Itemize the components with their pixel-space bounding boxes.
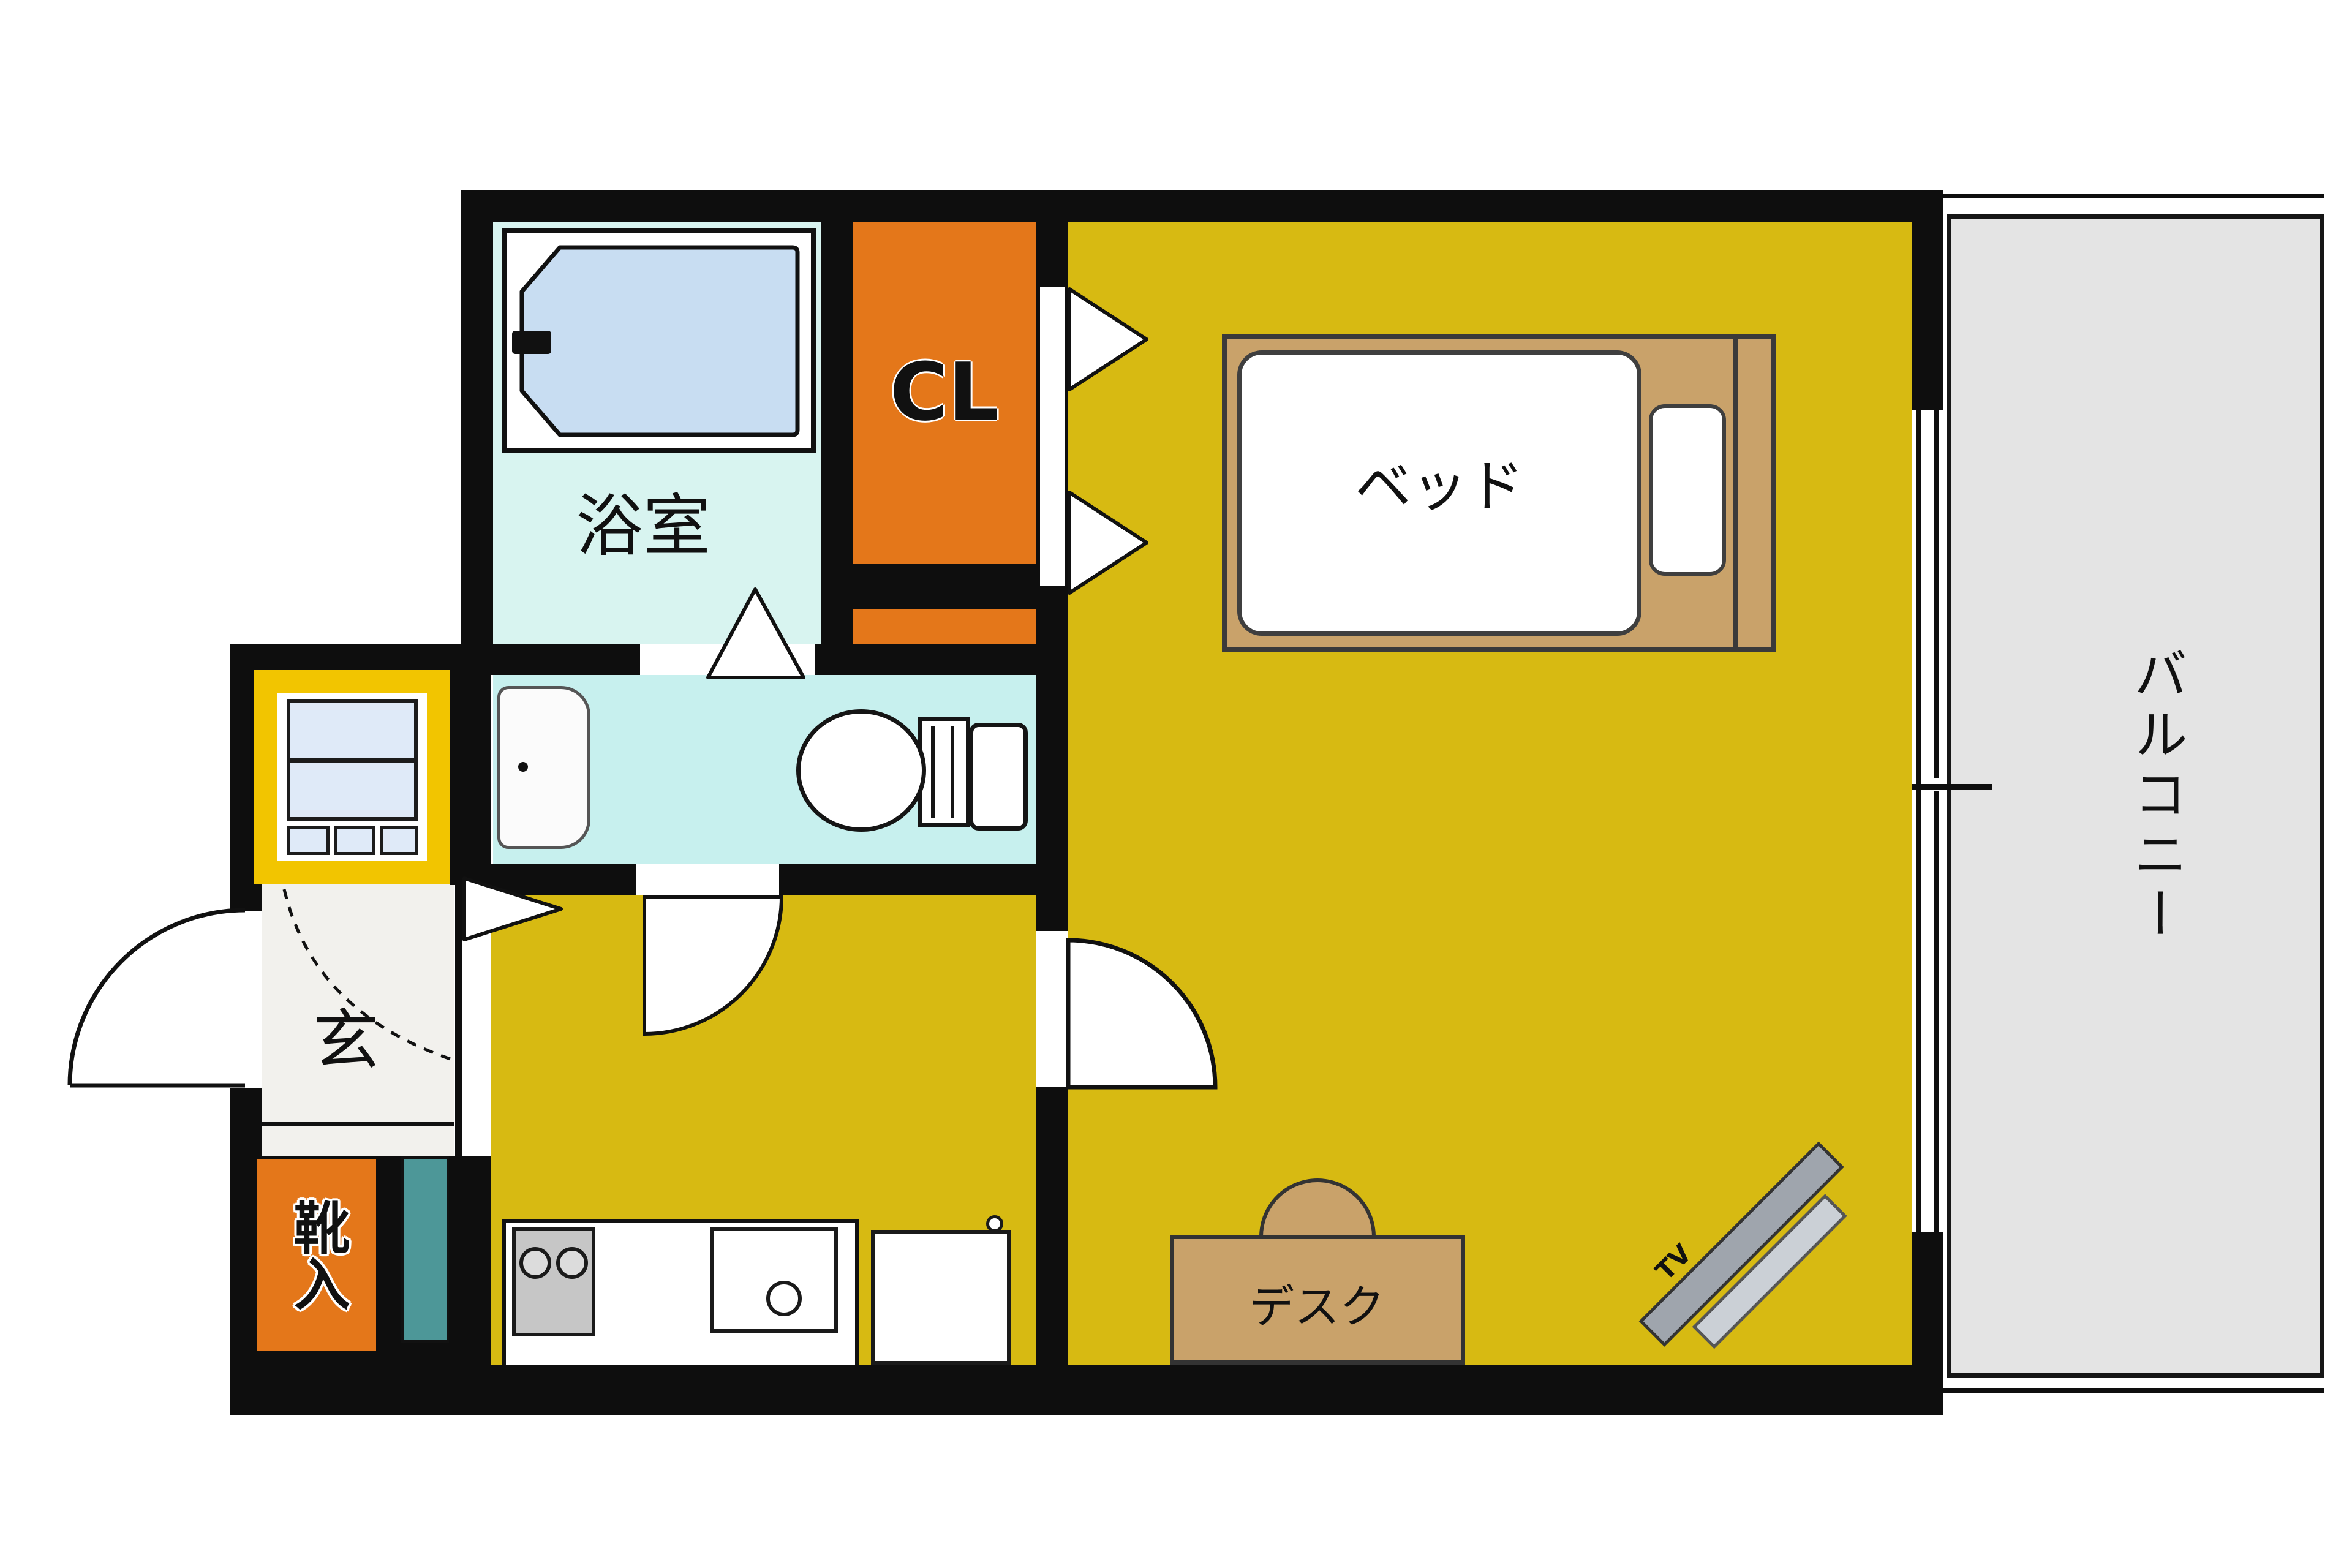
shoe-storage: 靴入 — [257, 1159, 376, 1351]
window-frame-bottom-tick — [1912, 1232, 1943, 1237]
wall-main-left-a — [1036, 222, 1068, 283]
refrigerator-knob — [986, 1215, 1003, 1232]
floor-plan: 靴入 TV 浴室 CL ベッド — [0, 0, 2352, 1568]
bed-label: ベッド — [1286, 453, 1593, 521]
balcony-label: バルコニー — [2101, 625, 2211, 968]
window-glass-line-right-lower — [1934, 791, 1939, 1232]
stove-burner-right — [556, 1247, 588, 1279]
desk-label: デスク — [1194, 1280, 1439, 1335]
wall-left-upper — [461, 190, 493, 644]
entrance-step-line — [260, 1122, 454, 1126]
wall-main-left-b — [1036, 589, 1068, 931]
washer-control-3 — [380, 826, 418, 855]
window-latch-mark — [1912, 784, 1992, 790]
window-glass-line-left — [1916, 410, 1921, 1232]
toilet-tank — [969, 723, 1028, 831]
toilet-bowl — [796, 709, 926, 832]
wall-bathroom-closet — [821, 222, 853, 644]
wall-washroom-kitchen-a — [491, 864, 636, 895]
wall-right-top — [1912, 190, 1943, 410]
bed-pillow — [1649, 404, 1726, 576]
shoe-storage-label: 靴入 — [257, 1159, 376, 1351]
kitchen-sink — [710, 1227, 838, 1333]
washer-control-2 — [334, 826, 375, 855]
washbasin-drain — [518, 762, 528, 772]
stove-burner-left — [519, 1247, 551, 1279]
main-door-gap — [1036, 931, 1068, 1087]
bathroom-label: 浴室 — [508, 490, 778, 563]
refrigerator-space — [871, 1230, 1011, 1365]
entrance-door-arc — [70, 910, 245, 1085]
balcony-bottom-line — [1943, 1388, 2324, 1393]
entrance-label: 玄 — [282, 998, 410, 1084]
bathtub-surround — [502, 228, 816, 453]
wall-main-left-c — [1036, 1087, 1068, 1365]
wall-genkan-corridor-line — [455, 885, 462, 1158]
window-frame-top-tick — [1912, 405, 1943, 410]
wall-mid-horizontal-right — [815, 644, 1068, 675]
closet-lower-floor — [853, 609, 1036, 644]
toilet-seat-line-1 — [931, 726, 935, 818]
wall-bottom — [230, 1365, 1943, 1415]
wall-washroom-kitchen-b — [779, 864, 1036, 895]
stove — [512, 1227, 595, 1336]
wall-closet-strip — [853, 563, 1036, 609]
window-glass-line-right-upper — [1934, 410, 1939, 778]
wall-right-bottom — [1912, 1232, 1943, 1415]
washbasin — [497, 686, 590, 849]
toilet-seat-line-2 — [951, 726, 954, 818]
sink-drain — [766, 1281, 802, 1316]
balcony-top-line — [1943, 194, 2324, 198]
wall-top — [461, 190, 1943, 222]
bed-foot-line — [1733, 334, 1738, 652]
washer-control-1 — [287, 826, 330, 855]
washing-machine-lid-line — [287, 758, 418, 763]
closet-label: CL — [853, 343, 1036, 441]
wall-washer-right — [450, 675, 491, 885]
closet-folding-door — [1036, 283, 1068, 589]
storage-partition — [401, 1156, 449, 1343]
entrance-door-gap — [230, 911, 262, 1088]
